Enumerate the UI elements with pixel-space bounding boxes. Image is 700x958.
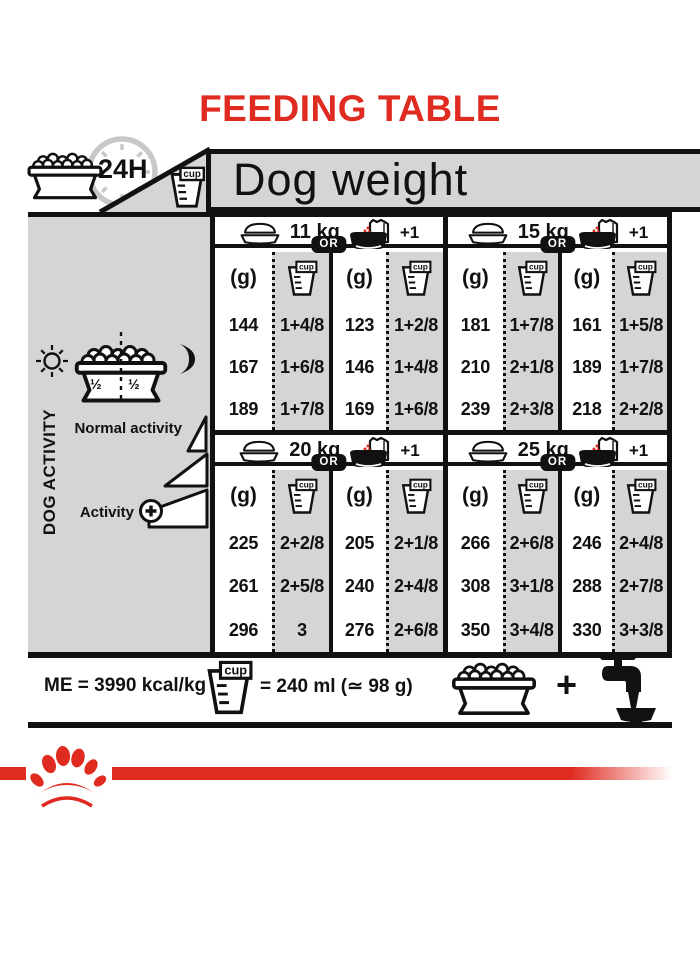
food-bowl-icon: [436, 660, 552, 720]
weight-section-11kg: 11 kg +1 OR (g) 144 167 189 1+4/8 1+6/8 …: [215, 217, 443, 430]
cup-value: 2+4/8: [615, 522, 667, 565]
grams-header: (g): [333, 252, 386, 304]
or-badge: OR: [540, 236, 575, 253]
grams-value: 189: [215, 388, 272, 430]
grams-value: 161: [562, 304, 613, 346]
normal-activity-ramp-icon: [185, 413, 209, 453]
grams-value: 288: [562, 565, 613, 608]
grams-value: 308: [448, 565, 503, 608]
or-badge: OR: [540, 454, 575, 471]
cup-equivalence-label: = 240 ml (≃ 98 g): [260, 675, 413, 698]
grams-value: 225: [215, 522, 272, 565]
grams-value: 181: [448, 304, 503, 346]
cup-icon: [286, 260, 318, 297]
cup-icon: [400, 260, 432, 297]
cup-value: 1+4/8: [389, 346, 443, 388]
dog-activity-sidebar: ½ ½ DOG ACTIVITY Normal activity Activit…: [28, 217, 210, 652]
grams-value: 330: [562, 609, 613, 652]
grams-value: 350: [448, 609, 503, 652]
section-header: 20 kg +1 OR: [215, 435, 443, 466]
grams-value: 205: [333, 522, 386, 565]
medium-activity-ramp-icon: [162, 451, 210, 489]
cup-value: 3+3/8: [615, 609, 667, 652]
cup-icon: [400, 478, 432, 515]
grams-value: 218: [562, 388, 613, 430]
cup-value: 1+7/8: [615, 346, 667, 388]
grams-value: 246: [562, 522, 613, 565]
empty-bowl-icon: [467, 222, 509, 245]
weight-section-25kg: 25 kg +1 OR (g) 266 308 350 2+6/8 3+1/8 …: [448, 435, 667, 652]
plus-one-label: +1: [629, 441, 648, 461]
grams-header: (g): [333, 470, 386, 522]
cup-value: 2+2/8: [615, 388, 667, 430]
plus-one-label: +1: [400, 223, 419, 243]
grams-header: (g): [215, 252, 272, 304]
cup-value: 2+5/8: [275, 565, 329, 608]
grams-value: 239: [448, 388, 503, 430]
grams-value: 276: [333, 609, 386, 652]
cup-value: 2+7/8: [615, 565, 667, 608]
cup-icon: [516, 478, 548, 515]
wet-food-pouch-icon: [578, 218, 620, 252]
empty-bowl-icon: [467, 440, 509, 463]
cup-value: 3: [275, 609, 329, 652]
grams-value: 240: [333, 565, 386, 608]
footer-bar: ME = 3990 kcal/kg = 240 ml (≃ 98 g) +: [28, 658, 672, 728]
grams-value: 210: [448, 346, 503, 388]
kibble-bowl-icon: [26, 150, 104, 204]
cup-value: 1+6/8: [389, 388, 443, 430]
grams-header: (g): [448, 470, 503, 522]
cup-value: 2+1/8: [506, 346, 558, 388]
cup-value: 1+7/8: [506, 304, 558, 346]
daily-ration-label: 24H: [98, 154, 148, 185]
cup-value: 2+4/8: [389, 565, 443, 608]
normal-activity-label: Normal activity: [64, 420, 182, 437]
half-left-label: ½: [90, 376, 102, 392]
half-portions-bowl-icon: ½ ½: [66, 332, 176, 410]
brand-bar-left: [0, 767, 26, 780]
feeding-table: ½ ½ DOG ACTIVITY Normal activity Activit…: [28, 212, 672, 658]
cup-value: 2+6/8: [389, 609, 443, 652]
cup-icon: [516, 260, 548, 297]
plus-circle-icon: [138, 498, 164, 524]
grams-header: (g): [562, 252, 613, 304]
cup-value: 2+3/8: [506, 388, 558, 430]
wet-food-pouch-icon: [349, 436, 391, 470]
metabolizable-energy-label: ME = 3990 kcal/kg: [44, 675, 206, 697]
grams-value: 169: [333, 388, 386, 430]
section-header: 15 kg +1 OR: [448, 217, 667, 248]
section-header: 11 kg +1 OR: [215, 217, 443, 248]
feeding-table-panel: FEEDING TABLE 24H Dog weight: [0, 0, 700, 958]
grams-value: 266: [448, 522, 503, 565]
wet-food-pouch-icon: [349, 218, 391, 252]
grams-value: 146: [333, 346, 386, 388]
sun-icon: [34, 343, 70, 379]
cup-value: 1+2/8: [389, 304, 443, 346]
water-tap-icon: [584, 654, 668, 726]
activity-label: Activity: [56, 504, 134, 521]
grams-header: (g): [448, 252, 503, 304]
dog-activity-axis-label: DOG ACTIVITY: [40, 402, 60, 542]
cup-value: 3+4/8: [506, 609, 558, 652]
cup-icon: [204, 660, 254, 716]
grams-header: (g): [562, 470, 613, 522]
weight-section-20kg: 20 kg +1 OR (g) 225 261 296 2+2/8 2+5/8 …: [215, 435, 443, 652]
brand-paw-logo: [27, 745, 107, 809]
cup-icon: [168, 166, 206, 209]
grams-value: 189: [562, 346, 613, 388]
wet-food-pouch-icon: [578, 436, 620, 470]
plus-one-label: +1: [400, 441, 419, 461]
cup-value: 2+2/8: [275, 522, 329, 565]
section-header: 25 kg +1 OR: [448, 435, 667, 466]
grams-header: (g): [215, 470, 272, 522]
grams-value: 123: [333, 304, 386, 346]
or-badge: OR: [311, 454, 346, 471]
cup-value: 1+6/8: [275, 346, 329, 388]
cup-value: 1+4/8: [275, 304, 329, 346]
weight-section-15kg: 15 kg +1 OR (g) 181 210 239 1+7/8 2+1/8 …: [448, 217, 667, 430]
grams-value: 167: [215, 346, 272, 388]
dog-weight-header: Dog weight: [206, 149, 700, 212]
cup-value: 2+6/8: [506, 522, 558, 565]
brand-bar: [112, 767, 672, 780]
cup-icon: [625, 260, 657, 297]
plus-one-label: +1: [629, 223, 648, 243]
empty-bowl-icon: [238, 440, 280, 463]
grams-value: 261: [215, 565, 272, 608]
empty-bowl-icon: [239, 222, 281, 245]
cup-value: 1+5/8: [615, 304, 667, 346]
cup-value: 3+1/8: [506, 565, 558, 608]
cup-icon: [625, 478, 657, 515]
plus-icon: +: [556, 664, 577, 706]
cup-value: 1+7/8: [275, 388, 329, 430]
page-title: FEEDING TABLE: [0, 88, 700, 130]
or-badge: OR: [311, 236, 346, 253]
cup-icon: [286, 478, 318, 515]
grams-value: 296: [215, 609, 272, 652]
half-right-label: ½: [128, 376, 140, 392]
cup-value: 2+1/8: [389, 522, 443, 565]
grams-value: 144: [215, 304, 272, 346]
moon-icon: [174, 343, 198, 375]
